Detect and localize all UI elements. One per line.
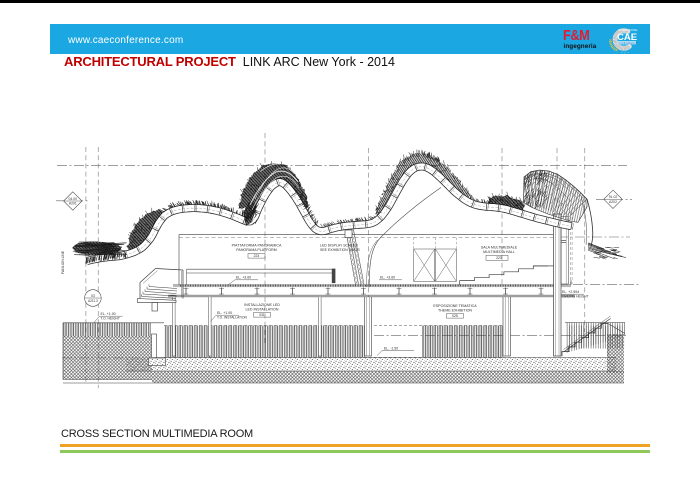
svg-text:025: 025: [452, 314, 458, 318]
svg-text:031: 031: [259, 313, 265, 317]
svg-text:T.O. HEIGHT: T.O. HEIGHT: [101, 317, 120, 321]
svg-text:03: 03: [91, 294, 95, 298]
svg-text:EL. +2.594: EL. +2.594: [562, 290, 579, 294]
svg-text:EL. +1.00: EL. +1.00: [217, 311, 232, 315]
svg-text:A201: A201: [69, 202, 77, 206]
svg-text:MULTIMEDIA HALL: MULTIMEDIA HALL: [483, 250, 515, 254]
svg-text:THEME EXHIBITION: THEME EXHIBITION: [438, 309, 472, 313]
svg-text:EL. +3.60: EL. +3.60: [236, 276, 251, 280]
svg-text:PAVILION LINE: PAVILION LINE: [61, 250, 65, 274]
svg-text:04.00: 04.00: [69, 197, 78, 201]
svg-text:SEE EXHIBITION DWGS: SEE EXHIBITION DWGS: [320, 248, 360, 252]
svg-text:SALA MULTIMEDIALE: SALA MULTIMEDIALE: [481, 246, 518, 250]
svg-text:91.02: 91.02: [609, 195, 618, 199]
svg-text:ESPOSIZIONE TEMATICA: ESPOSIZIONE TEMATICA: [433, 304, 477, 308]
svg-text:CEILING HEIGHT: CEILING HEIGHT: [562, 295, 589, 299]
svg-text:223: 223: [496, 256, 502, 260]
svg-text:LED INSTALLATION: LED INSTALLATION: [245, 308, 278, 312]
svg-text:INSTALLAZIONE LED: INSTALLAZIONE LED: [244, 303, 280, 307]
svg-text:EL. +3.60: EL. +3.60: [380, 276, 395, 280]
svg-text:PANORAMA PLATFORM: PANORAMA PLATFORM: [236, 248, 276, 252]
svg-text:LED DISPLAY SCREEN: LED DISPLAY SCREEN: [320, 244, 358, 248]
svg-text:EL. -1.50: EL. -1.50: [384, 347, 398, 351]
svg-text:PIATTAFORMA PANORAMICA: PIATTAFORMA PANORAMICA: [232, 244, 282, 248]
svg-text:A211.3: A211.3: [88, 299, 98, 303]
svg-text:223: 223: [254, 254, 260, 258]
svg-text:EL. +1.00: EL. +1.00: [101, 312, 116, 316]
svg-text:A202: A202: [609, 200, 617, 204]
svg-text:T.O. INSTALLATION: T.O. INSTALLATION: [217, 316, 248, 320]
